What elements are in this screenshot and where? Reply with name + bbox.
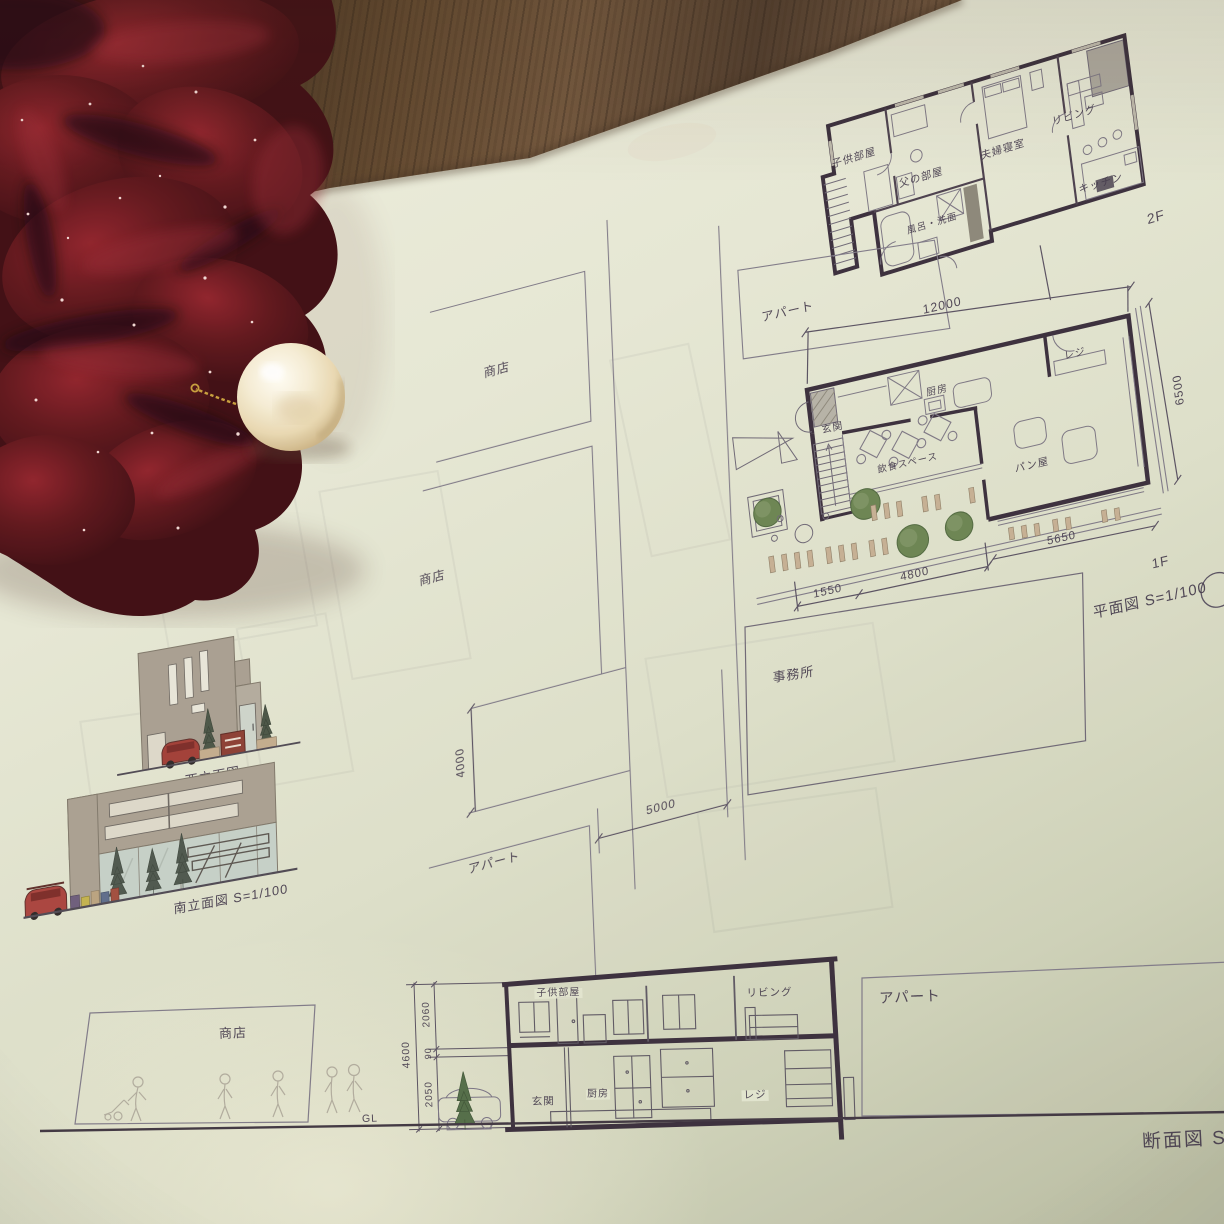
- scrunchie: [0, 0, 385, 618]
- photo-of-architectural-sheet: 商店 商店 4000 5000 アパート: [0, 0, 1224, 1224]
- scrunchie-and-pearl: [0, 0, 1224, 1224]
